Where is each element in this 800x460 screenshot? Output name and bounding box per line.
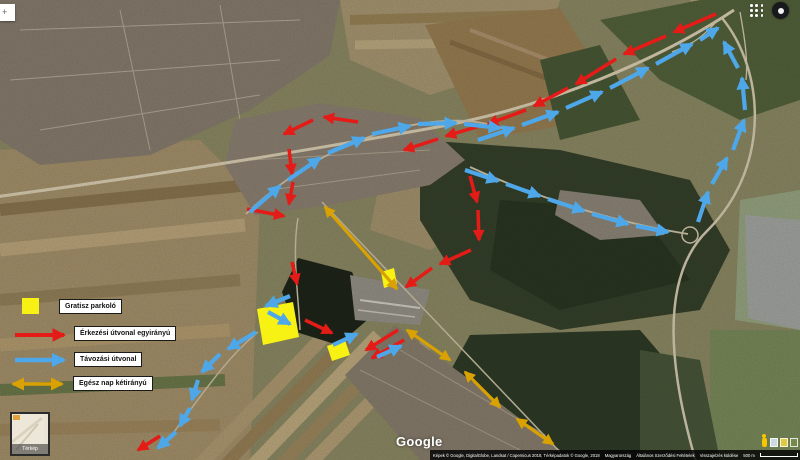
departure-route-arrow <box>712 158 727 184</box>
departure-route-arrow <box>656 44 692 64</box>
legend-parking-swatch <box>22 298 39 314</box>
arrival-route-arrow <box>440 250 471 264</box>
google-logo[interactable]: Google <box>396 434 443 449</box>
arrival-route-arrow <box>478 210 479 240</box>
account-avatar-icon[interactable] <box>772 2 789 19</box>
departure-route-arrow <box>158 432 176 448</box>
departure-route-arrow <box>180 408 190 426</box>
map-type-toggle[interactable]: Térkép <box>10 412 50 456</box>
scale-label[interactable]: 500 m <box>743 453 755 458</box>
departure-route-arrow <box>506 184 540 196</box>
arrival-route-arrow <box>289 182 293 204</box>
two-way-route-arrow <box>517 419 553 444</box>
terms-link[interactable]: Általános Szerződési Feltételek <box>636 453 694 458</box>
departure-route-arrow <box>418 123 456 124</box>
map-canvas[interactable]: Gratisz parkoló Érkezési útvonal egyirán… <box>0 0 800 460</box>
arrival-route-arrow <box>289 149 292 174</box>
arrival-route-arrow <box>404 139 438 150</box>
arrival-route-arrow <box>324 117 358 122</box>
departure-route-arrow <box>192 380 198 400</box>
departure-route-arrow <box>700 28 718 40</box>
departure-route-arrow <box>636 226 668 232</box>
departure-route-arrow <box>228 332 256 349</box>
departure-route-arrow <box>478 128 514 140</box>
imagery-thumbnail-2[interactable] <box>780 438 788 447</box>
imagery-thumbnail-1[interactable] <box>770 438 778 447</box>
imagery-thumbnail-3[interactable] <box>790 438 798 447</box>
two-way-route-arrow <box>465 372 500 407</box>
departure-route-arrow <box>566 92 602 108</box>
search-box-partial[interactable]: + <box>0 4 15 21</box>
arrival-route-arrow <box>534 88 568 106</box>
legend-label-departure-route: Távozási útvonal <box>74 352 142 367</box>
departure-route-arrow <box>733 120 744 150</box>
departure-route-arrow <box>202 354 220 372</box>
legend-label-free-parking: Gratisz parkoló <box>59 299 122 314</box>
arrival-route-arrow <box>470 176 477 202</box>
arrival-route-arrow <box>624 36 666 54</box>
arrival-route-arrow <box>138 436 160 450</box>
departure-route-arrow <box>372 126 410 134</box>
arrival-route-arrow <box>576 59 616 84</box>
feedback-link[interactable]: Visszajelzés küldése <box>700 453 739 458</box>
pegman-icon[interactable] <box>760 434 768 450</box>
free-parking-area <box>257 302 299 345</box>
imagery-credits: Képek © Google, DigitalGlobe, Landsat / … <box>433 453 600 458</box>
departure-route-arrow <box>610 68 648 88</box>
departure-route-arrow <box>742 78 745 110</box>
arrival-route-arrow <box>292 262 297 284</box>
departure-route-arrow <box>522 112 558 125</box>
arrival-route-arrow <box>674 14 716 32</box>
two-way-route-arrow <box>407 330 450 360</box>
minimap-label: Térkép <box>12 444 48 454</box>
departure-route-arrow <box>548 199 584 211</box>
departure-route-arrow <box>724 42 738 68</box>
attribution-bar: Képek © Google, DigitalGlobe, Landsat / … <box>430 450 800 460</box>
departure-route-arrow <box>592 214 628 224</box>
arrival-route-arrow <box>305 320 332 333</box>
routes-overlay <box>0 0 800 460</box>
arrival-route-arrow <box>406 268 432 287</box>
apps-grid-icon[interactable] <box>750 4 764 17</box>
departure-route-arrow <box>698 192 708 222</box>
country-label: Magyarország <box>605 453 632 458</box>
arrival-route-arrow <box>284 120 313 134</box>
scale-bar[interactable] <box>760 453 798 457</box>
arrival-route-arrow <box>488 110 526 124</box>
legend-label-arrival-route: Érkezési útvonal egyirányú <box>74 326 176 341</box>
two-way-route-arrow <box>325 207 397 289</box>
departure-route-arrow <box>328 138 364 153</box>
legend-label-two-way-route: Egész nap kétirányú <box>73 376 153 391</box>
departure-route-arrow <box>250 186 280 212</box>
arrival-route-arrow <box>446 126 480 136</box>
